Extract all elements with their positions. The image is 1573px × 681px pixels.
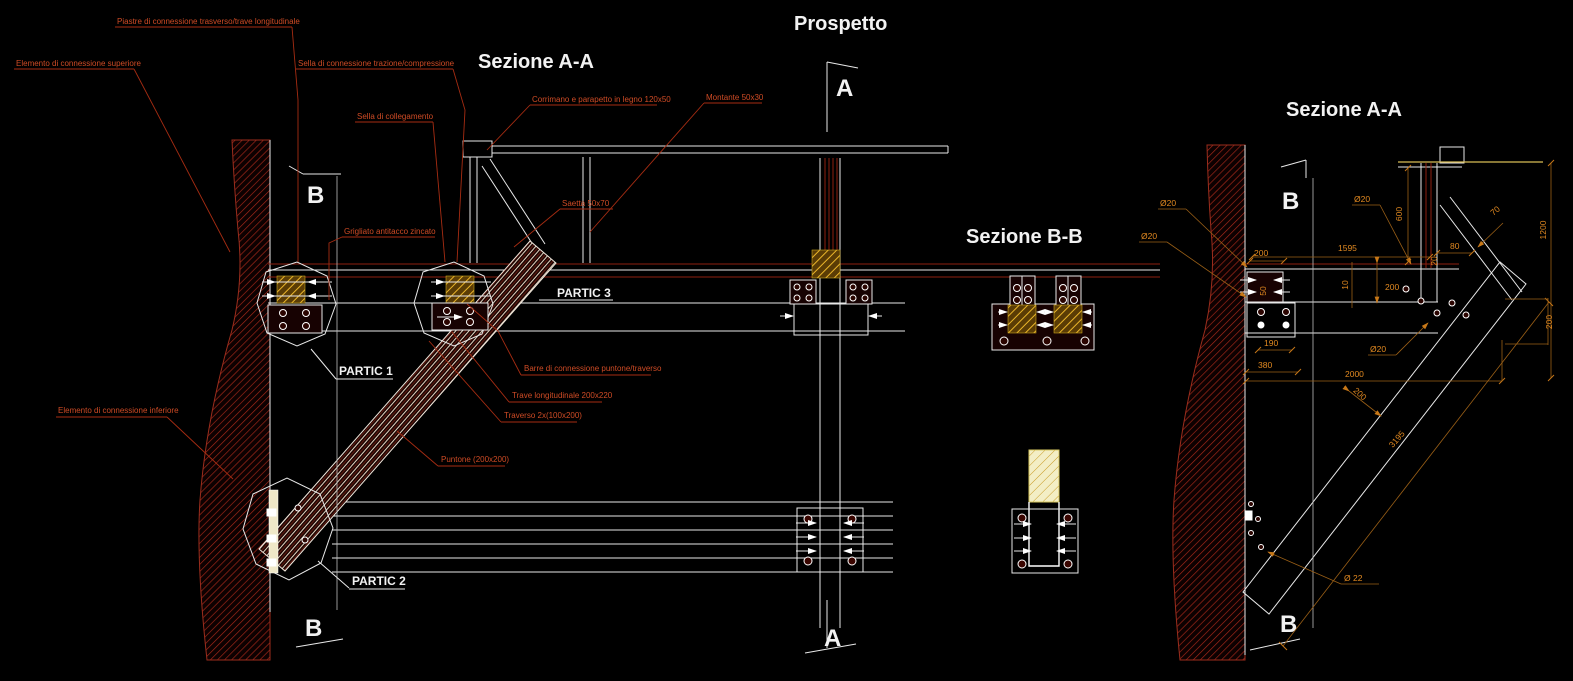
cad-drawing-canvas[interactable]: A A B B B B Sezione A-A Prospetto Sezion… (0, 0, 1573, 681)
annotation-trave: Trave longitudinale 200x220 (512, 391, 613, 400)
dim-dia20-2: Ø20 (1141, 231, 1157, 241)
dim-50: 50 (1258, 286, 1268, 296)
annotation-sella-trazione: Sella di connessione trazione/compressio… (298, 59, 455, 68)
dim-200-right: 200 (1544, 315, 1554, 329)
marker-b-top-right: B (1282, 188, 1299, 215)
gold-timber-section (446, 276, 474, 303)
marker-a-bottom: A (824, 625, 841, 652)
dim-2000: 2000 (1345, 369, 1364, 379)
gold-timber-section (1054, 305, 1082, 333)
label-partic-1: PARTIC 1 (339, 364, 393, 378)
dim-190: 190 (1264, 338, 1278, 348)
dim-dia22: Ø 22 (1344, 573, 1363, 583)
dim-80: 80 (1450, 241, 1460, 251)
gold-timber-section (1008, 305, 1036, 333)
bolt-plate (846, 280, 872, 304)
timber-post-section (1029, 450, 1059, 502)
annotation-sella-collegamento: Sella di collegamento (357, 112, 434, 121)
dim-600: 600 (1394, 207, 1404, 221)
annotation-piastre: Piastre di connessione trasverso/trave l… (117, 17, 300, 26)
annotation-elemento-inferiore: Elemento di connessione inferiore (58, 406, 179, 415)
annotation-traverso: Traverso 2x(100x200) (504, 411, 582, 420)
marker-b-top-left: B (307, 182, 324, 209)
marker-b-bottom-left: B (305, 615, 322, 642)
gold-timber-section (277, 276, 305, 303)
title-sezione-bb: Sezione B-B (966, 226, 1083, 248)
marker-a-top: A (836, 75, 853, 102)
dim-200-top: 200 (1254, 248, 1268, 258)
label-partic-2: PARTIC 2 (352, 574, 406, 588)
annotation-elemento-superiore: Elemento di connessione superiore (16, 59, 142, 68)
title-prospetto: Prospetto (794, 13, 887, 35)
dim-380: 380 (1258, 360, 1272, 370)
annotation-puntone: Puntone (200x200) (441, 455, 509, 464)
title-sezione-aa-left: Sezione A-A (478, 51, 594, 73)
marker-b-bottom-right: B (1280, 611, 1297, 638)
title-sezione-aa-right: Sezione A-A (1286, 99, 1402, 121)
dim-10: 10 (1340, 280, 1350, 290)
dim-dia20-4: Ø20 (1370, 344, 1386, 354)
dim-dia20-3: Ø20 (1354, 194, 1370, 204)
dim-1595: 1595 (1338, 243, 1357, 253)
annotation-montante: Montante 50x30 (706, 93, 764, 102)
annotation-grigliato: Grigliato antitacco zincato (344, 227, 436, 236)
dim-1200: 1200 (1538, 220, 1548, 239)
gold-timber-section (812, 250, 840, 278)
annotation-saetta: Saetta 50x70 (562, 199, 610, 208)
dim-20: 20 (1429, 256, 1439, 266)
bolt-plate (268, 305, 322, 333)
dim-dia20-1: Ø20 (1160, 198, 1176, 208)
label-partic-3: PARTIC 3 (557, 286, 611, 300)
dim-200-mid: 200 (1385, 282, 1399, 292)
cad-drawing: A A B B B B Sezione A-A Prospetto Sezion… (0, 0, 1573, 681)
bolt-plate (790, 280, 816, 304)
annotation-barre: Barre di connessione puntone/traverso (524, 364, 662, 373)
annotation-corrimano: Corrimano e parapetto in legno 120x50 (532, 95, 671, 104)
